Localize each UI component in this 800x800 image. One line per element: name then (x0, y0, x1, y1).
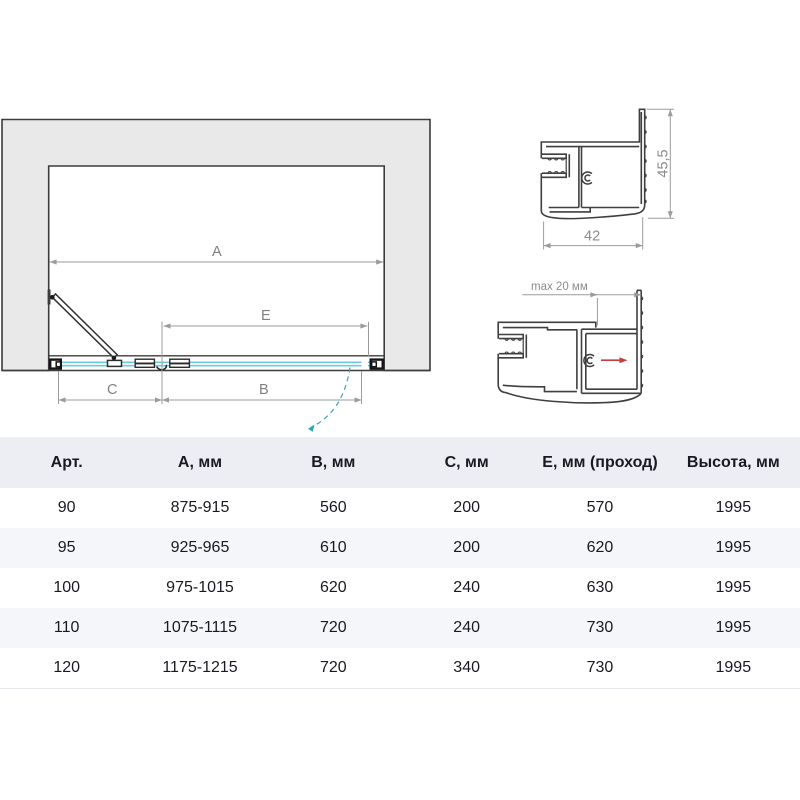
svg-text:E: E (261, 308, 271, 324)
svg-text:max 20 мм: max 20 мм (531, 281, 588, 293)
svg-text:45,5: 45,5 (656, 149, 672, 177)
svg-text:A: A (212, 244, 222, 260)
svg-text:42: 42 (584, 229, 600, 245)
svg-text:B: B (259, 382, 269, 398)
svg-text:C: C (107, 382, 117, 398)
